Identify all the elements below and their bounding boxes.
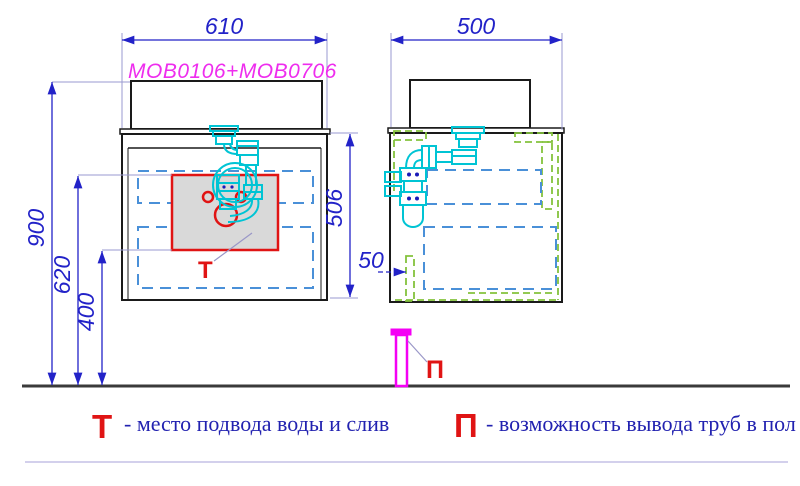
t-marker: Т	[198, 257, 213, 284]
legend-water-symbol: Т	[92, 408, 112, 445]
p-leader-line	[408, 341, 427, 362]
dim-text-50: 50	[358, 247, 384, 273]
installation-drawing: Т	[0, 0, 800, 486]
front-bolt-dot-2	[230, 185, 233, 188]
dim-text-400: 400	[73, 293, 99, 332]
front-view: Т	[120, 81, 330, 300]
dim-text-610: 610	[205, 13, 244, 39]
model-code-label: MOB0106+MOB0706	[128, 60, 337, 83]
side-bolt-dot-1	[407, 173, 411, 177]
front-washbasin	[131, 81, 322, 129]
legend-floor-text: - возможность вывода труб в пол	[486, 411, 796, 436]
side-view	[385, 80, 564, 302]
legend-floor-symbol: П	[454, 407, 478, 444]
side-bolt-dot-4	[415, 197, 419, 201]
front-bolt-dot-1	[222, 185, 225, 188]
floor-pipe-body	[396, 335, 407, 386]
floor-pipe-group: П	[391, 329, 444, 386]
legend: Т - место подвода воды и слив П - возмож…	[92, 407, 796, 445]
dim-text-900: 900	[23, 209, 49, 248]
p-marker: П	[426, 356, 444, 384]
side-bolt-dot-2	[415, 173, 419, 177]
dim-text-506: 506	[321, 189, 347, 228]
side-bolt-dot-3	[407, 197, 411, 201]
legend-water-text: - место подвода воды и слив	[124, 411, 389, 436]
dim-text-620: 620	[49, 256, 75, 295]
side-washbasin	[410, 80, 530, 128]
dim-text-500: 500	[457, 13, 496, 39]
installation-drawing-page: Т	[0, 0, 800, 486]
